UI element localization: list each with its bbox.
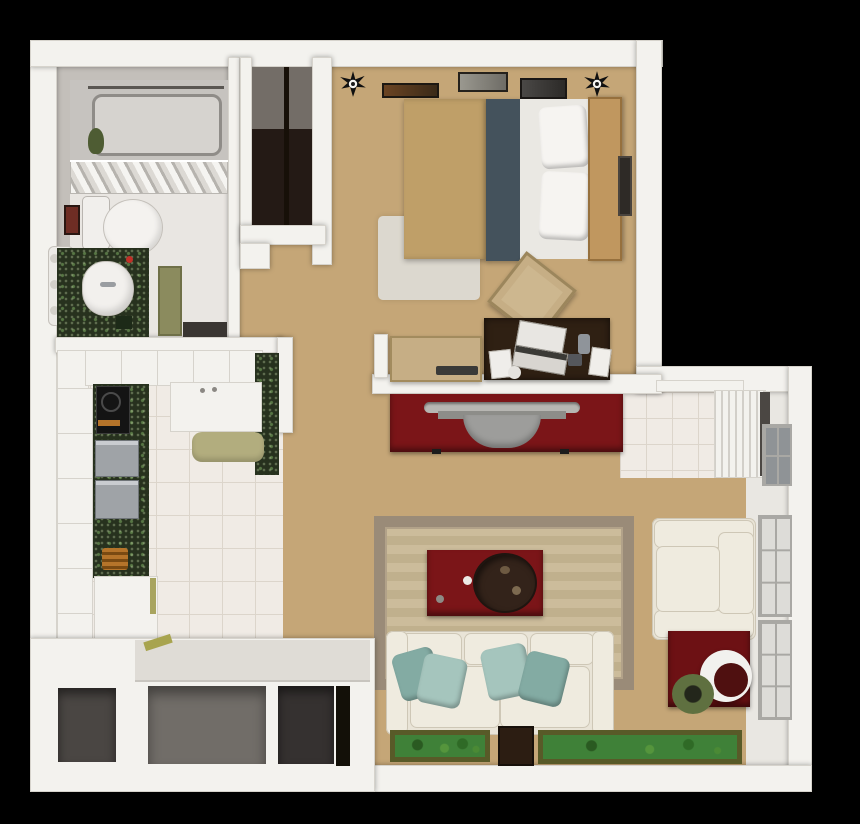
wreath (672, 674, 714, 714)
floor-mat (538, 730, 742, 764)
ceiling-light-icon (338, 70, 368, 98)
tray-cup-white (463, 576, 472, 585)
towel-rack (70, 160, 228, 194)
island-olive-accent (150, 578, 156, 614)
sofa-armrest (592, 631, 614, 735)
closet-south-wall (240, 225, 326, 245)
tv-stand-foot (560, 449, 569, 454)
bathroom-sink (82, 261, 134, 316)
ceiling-light-icon (582, 70, 612, 98)
kitchen-east-wall (277, 337, 293, 433)
vanity-accessory (116, 316, 132, 329)
wall-picture (520, 78, 567, 99)
wall-picture (458, 72, 508, 92)
closet-west-wall (240, 57, 252, 243)
bed-pillow (538, 104, 590, 169)
desk-box (588, 347, 612, 378)
bed-stripe (486, 99, 522, 261)
closet-interior-divider (284, 67, 289, 225)
desk-bottle (578, 334, 590, 354)
tv-stand-foot (432, 449, 441, 454)
bedroom-south-wall-cap (374, 334, 388, 378)
stove-knob-strip (98, 420, 120, 426)
floor-plan-render (0, 0, 860, 824)
kitchen-upper-cabinets (85, 350, 263, 386)
serving-tray (473, 553, 537, 613)
bed-pillow (538, 171, 591, 242)
shower-pipe (88, 86, 224, 89)
closet-interior-dark (252, 129, 312, 225)
steel-appliance (95, 480, 139, 519)
bar-counter-surface (135, 640, 370, 682)
bathroom-door (158, 266, 182, 336)
table-dot-gray (436, 595, 444, 603)
tray-item (500, 566, 510, 574)
steel-appliance (95, 440, 139, 477)
window (762, 424, 792, 486)
window (758, 515, 792, 617)
armchair-seat-cushion (656, 546, 720, 612)
sink-unit-dot (200, 388, 205, 393)
headboard (588, 97, 622, 261)
kitchen-tall-cabinets (57, 388, 93, 660)
nightstand (390, 336, 482, 382)
bathroom-wall-art (64, 205, 80, 235)
closet-corner-wall (240, 243, 270, 269)
outer-wall-top (30, 40, 663, 67)
bowl-lamp-inner (714, 663, 748, 697)
closet-interior-shelf (252, 67, 312, 129)
louvered-cabinet (714, 390, 766, 478)
bar-recess (148, 686, 266, 764)
sink-unit-dot (212, 387, 217, 392)
bed-blanket (404, 99, 488, 259)
outer-wall-right-upper (636, 40, 662, 392)
bar-end-slot (336, 686, 350, 766)
bar-recess (58, 688, 116, 762)
remote-control (436, 366, 478, 375)
hallway-floor-lower (283, 340, 383, 640)
desk-item-dark (568, 354, 582, 366)
armchair-backrest (718, 532, 754, 614)
kitchen-floor-mat (192, 432, 264, 462)
counter-basket (102, 548, 128, 570)
stove-burner (101, 392, 121, 412)
bathroom-plant (88, 128, 104, 154)
wall-picture (382, 83, 439, 98)
bathtub-basin (92, 94, 222, 156)
bar-recess (278, 686, 334, 764)
sink-faucet (100, 282, 116, 287)
soap-red (126, 256, 133, 263)
stool (498, 726, 534, 766)
floor-mat (390, 730, 490, 762)
door-threshold-shadow (183, 322, 227, 337)
window (758, 620, 792, 720)
tray-item (512, 586, 521, 595)
bathroom-east-wall (228, 57, 240, 353)
wall-picture-right (618, 156, 632, 216)
desk-ball (508, 366, 521, 379)
